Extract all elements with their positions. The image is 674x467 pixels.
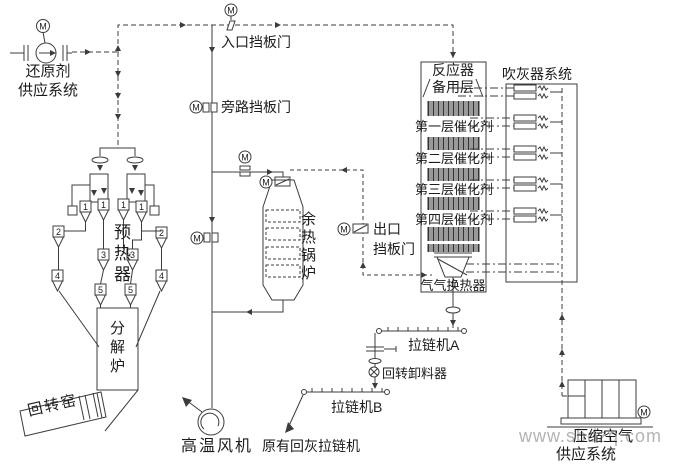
cyclone-number: 5 xyxy=(98,285,103,295)
motor-icon: M xyxy=(37,20,50,33)
motor-icon: M xyxy=(638,406,650,418)
outlet-damper-valve xyxy=(353,224,368,233)
inlet-damper-label: 入口挡板门 xyxy=(221,34,291,51)
boiler-inlet-valve xyxy=(240,166,250,176)
reagent-supply-label-line2: 供应系统 xyxy=(8,82,88,99)
waste-heat-boiler-vessel xyxy=(263,180,303,300)
diagram-canvas: M M M M M M M M 1 1 1 1 2 2 3 3 4 4 5 5 xyxy=(0,0,674,467)
bypass-damper-label: 旁路挡板门 xyxy=(221,99,291,116)
process-flow-diagram: M M M M M M M M 1 1 1 1 2 2 3 3 4 4 5 5 … xyxy=(0,0,674,467)
reagent-pump xyxy=(10,32,72,63)
motor-icon: M xyxy=(190,101,202,113)
calciner-label: 分解炉 xyxy=(108,320,125,377)
outlet-damper-label-line1: 出口 xyxy=(373,221,401,238)
boiler-damper-valve xyxy=(275,177,290,186)
compressor-label-line1: 压缩空气 xyxy=(564,428,642,445)
catalyst-layer-label: 第三层催化剂 xyxy=(414,181,494,198)
cyclone-number: 1 xyxy=(139,202,144,212)
catalyst-layer-label: 第二层催化剂 xyxy=(414,150,494,167)
cyclone-number: 4 xyxy=(55,271,60,281)
motor-letter: M xyxy=(39,22,47,32)
motor-letter: M xyxy=(227,6,235,16)
motor-icon: M xyxy=(338,223,350,235)
cyclone-number: 2 xyxy=(159,228,164,238)
duct-damper-valve xyxy=(204,233,218,242)
cyclone-number: 1 xyxy=(83,202,88,212)
cyclone-number: 4 xyxy=(159,271,164,281)
rotary-discharger-label: 回转卸料器 xyxy=(382,365,447,382)
inlet-damper-valve xyxy=(227,16,235,30)
boiler-label: 余热锅炉 xyxy=(299,211,316,283)
motor-letter: M xyxy=(192,103,200,113)
cyclone-number: 1 xyxy=(121,200,126,210)
motor-letter: M xyxy=(193,234,201,244)
cyclone-number: 5 xyxy=(128,285,133,295)
preheater-label: 预热器 xyxy=(112,223,129,286)
motor-letter: M xyxy=(640,408,648,418)
reagent-supply-label-line1: 还原剂 xyxy=(8,63,88,80)
cyclone-number: 1 xyxy=(101,200,106,210)
sootblower-title: 吹灰器系统 xyxy=(502,66,572,83)
bypass-damper-valve xyxy=(203,103,217,112)
motor-icon: M xyxy=(239,151,251,163)
outlet-damper-label-line2: 挡板门 xyxy=(373,241,415,258)
existing-conveyor-label: 原有回灰拉链机 xyxy=(262,438,360,455)
catalyst-layer-label: 第一层催化剂 xyxy=(414,118,494,135)
gas-heat-exchanger-label: 气气换热器 xyxy=(420,277,486,294)
motor-letter: M xyxy=(241,153,249,163)
compressor-label-line2: 供应系统 xyxy=(551,446,621,463)
conveyor-a-label: 拉链机A xyxy=(408,337,459,354)
conveyor-b-label: 拉链机B xyxy=(331,399,382,416)
reactor-title: 反应器 xyxy=(424,62,482,79)
motor-letter: M xyxy=(340,225,348,235)
motor-icon: M xyxy=(225,4,237,16)
cyclone-number: 2 xyxy=(56,227,61,237)
spare-layer-label: 备用层 xyxy=(424,79,482,96)
motor-icon: M xyxy=(260,176,272,188)
high-temp-fan xyxy=(182,397,224,435)
cyclone-number: 3 xyxy=(130,250,135,260)
motor-letter: M xyxy=(262,178,270,188)
cyclone-number: 3 xyxy=(101,250,106,260)
motor-icon: M xyxy=(191,232,203,244)
cyclone-numbers: 1 1 1 1 2 2 3 3 4 4 5 5 xyxy=(55,200,164,295)
catalyst-layer-label: 第四层催化剂 xyxy=(414,211,494,228)
fan-label: 高温风机 xyxy=(181,438,253,455)
air-compressor xyxy=(547,380,653,427)
